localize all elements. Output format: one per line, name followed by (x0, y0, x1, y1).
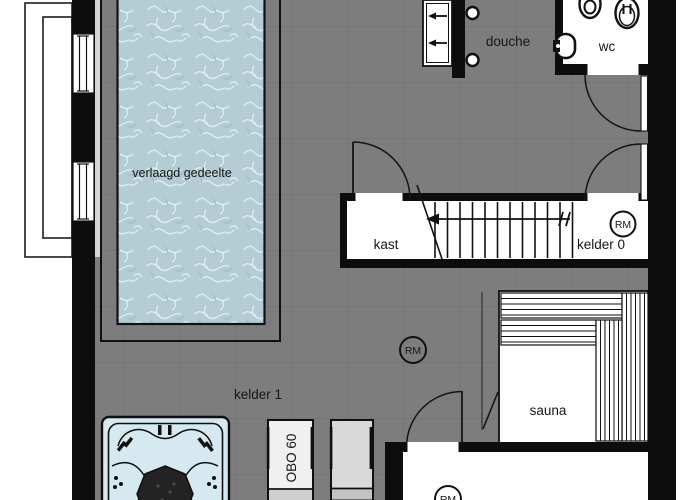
svg-text:RM: RM (440, 494, 456, 500)
shower-head-icon (467, 7, 479, 19)
wall-bottom-left (385, 442, 403, 500)
pool: verlaagd gedeelte (101, 0, 280, 341)
window-lower (73, 162, 94, 221)
pool-water (118, 0, 265, 324)
sauna-bench-lower (501, 320, 596, 345)
wc-label: wc (598, 39, 616, 54)
shower-panel (423, 0, 452, 66)
opening-wc (584, 64, 642, 75)
smoke-detector-symbol: RM (400, 337, 426, 363)
bidet-icon (580, 0, 601, 18)
sauna-bench-upper (501, 293, 622, 318)
svg-text:RM: RM (615, 219, 631, 231)
svg-text:RM: RM (405, 345, 421, 357)
wall-finish-strip (95, 0, 100, 257)
appliance-label: OBO 60 (284, 434, 299, 483)
opening-kelder0 (584, 193, 642, 201)
wall-stairs-bottom (340, 259, 648, 268)
sauna-room: sauna (499, 291, 648, 443)
hot-tub (102, 417, 229, 500)
sauna-slat-wall-inner (596, 320, 622, 441)
floorplan-basement: verlaagd gedeelte (0, 0, 700, 500)
wall-stairs-left (340, 193, 347, 268)
sink-icon (553, 34, 575, 58)
appliance-plain (330, 420, 373, 500)
toilet-icon (616, 0, 639, 28)
basement0-label: kelder 0 (577, 237, 625, 252)
window-upper (73, 34, 94, 93)
opening-bottom-room (404, 442, 462, 452)
smoke-detector-symbol: RM (611, 212, 636, 237)
opening-kast (352, 193, 406, 201)
wall-right (648, 0, 676, 500)
closet-label: kast (374, 237, 399, 252)
wall-shower (452, 0, 465, 78)
shower-head-icon (467, 54, 479, 66)
sauna-label: sauna (530, 403, 567, 418)
pool-label: verlaagd gedeelte (132, 166, 231, 180)
basement1-label: kelder 1 (234, 387, 282, 402)
shower-label: douche (486, 34, 530, 49)
sauna-slat-wall-outer (622, 293, 648, 441)
appliance-obo60: OBO 60 (267, 420, 313, 500)
